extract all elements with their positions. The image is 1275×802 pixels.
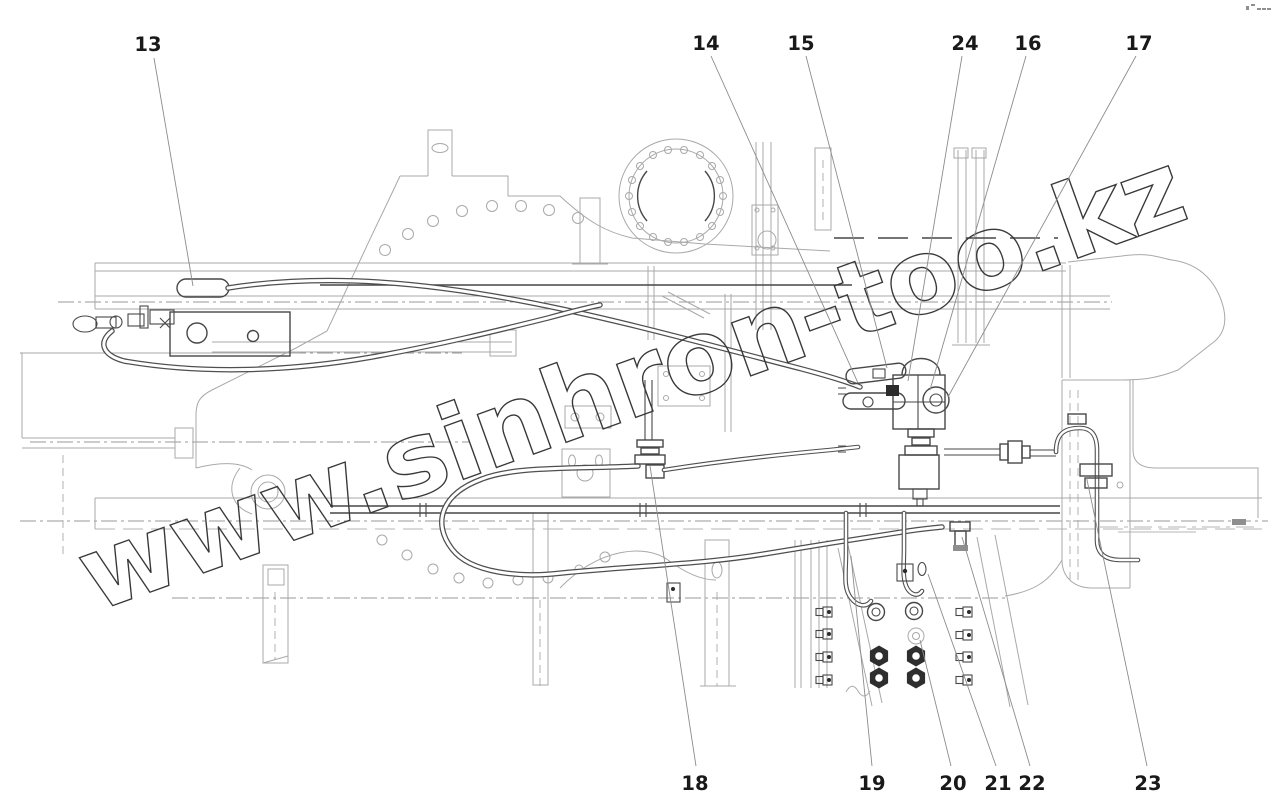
hose-sleeve-13 <box>177 279 229 297</box>
callout-13: 13 <box>134 33 161 56</box>
callout-17: 17 <box>1125 32 1152 55</box>
callout-18: 18 <box>681 772 708 795</box>
callout-21: 21 <box>984 772 1011 795</box>
control-valve-assembly <box>843 359 1056 507</box>
callout-16: 16 <box>1014 32 1041 55</box>
right-riser-pipe <box>1056 414 1138 560</box>
callout-24: 24 <box>951 32 978 55</box>
gusset-bolt-holes <box>380 201 584 256</box>
chassis-hydraulics-diagram: www.sinhron-too.kz 13 14 15 24 16 17 18 … <box>0 0 1275 802</box>
parts-diagram-page: www.sinhron-too.kz 13 14 15 24 16 17 18 … <box>0 0 1275 802</box>
callout-14: 14 <box>692 32 719 55</box>
callout-15: 15 <box>787 32 814 55</box>
fitting-column-left <box>816 607 832 685</box>
callout-20: 20 <box>939 772 966 795</box>
callout-22: 22 <box>1018 772 1045 795</box>
watermark-text: www.sinhron-too.kz <box>63 128 1200 636</box>
fitting-column-right <box>956 607 972 685</box>
corner-marks <box>1246 4 1271 10</box>
callout-19: 19 <box>858 772 885 795</box>
flywheel-housing <box>619 139 733 253</box>
callout-23: 23 <box>1134 772 1161 795</box>
